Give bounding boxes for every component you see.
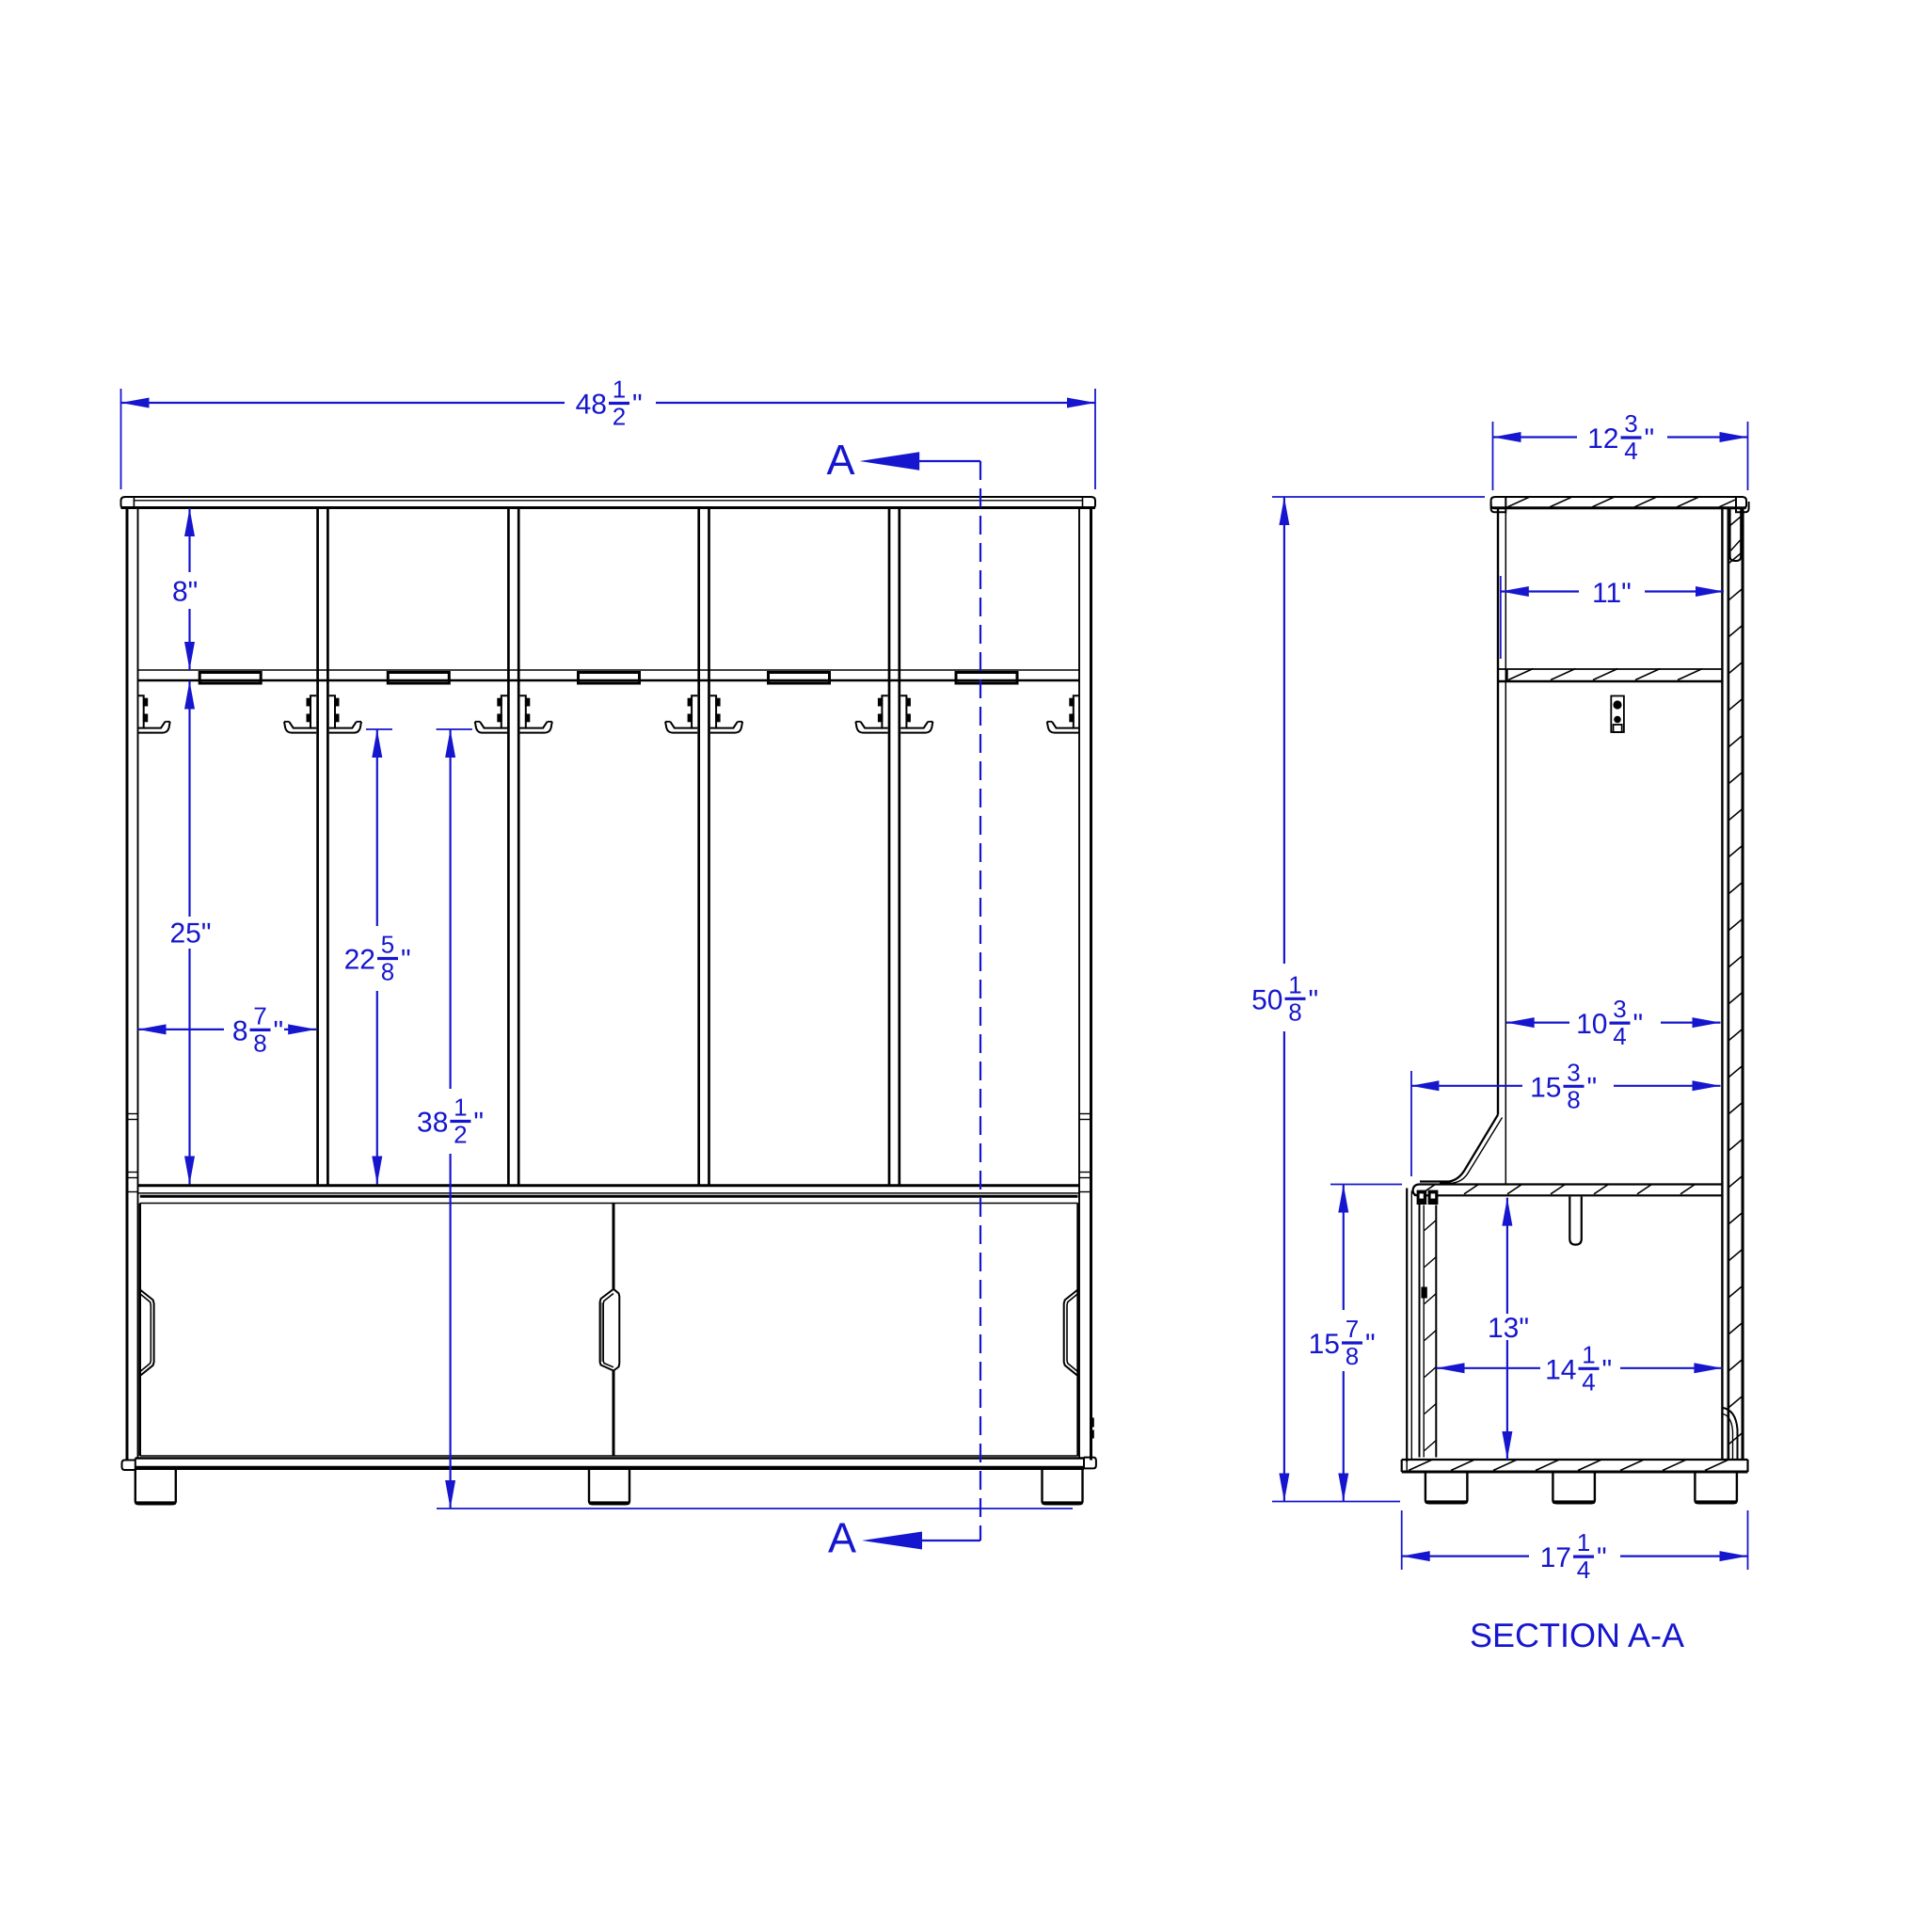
- svg-text:22: 22: [344, 945, 375, 976]
- svg-text:1: 1: [1582, 1340, 1595, 1368]
- svg-text:15: 15: [1309, 1329, 1340, 1360]
- svg-text:1: 1: [1288, 970, 1301, 998]
- svg-text:14: 14: [1545, 1354, 1576, 1385]
- svg-text:38: 38: [417, 1108, 448, 1139]
- svg-text:4: 4: [1577, 1556, 1590, 1584]
- svg-text:8: 8: [253, 1029, 266, 1057]
- svg-text:": ": [1365, 1329, 1376, 1360]
- svg-text:A: A: [826, 436, 854, 484]
- svg-text:1: 1: [454, 1094, 467, 1122]
- svg-text:8": 8": [172, 577, 198, 608]
- svg-text:2: 2: [454, 1121, 467, 1149]
- svg-text:": ": [1633, 1009, 1644, 1040]
- svg-text:": ": [473, 1108, 484, 1139]
- svg-text:50: 50: [1251, 984, 1282, 1015]
- svg-text:4: 4: [1582, 1367, 1595, 1396]
- svg-text:11": 11": [1592, 578, 1632, 609]
- svg-text:10: 10: [1576, 1009, 1607, 1040]
- svg-text:A: A: [828, 1514, 856, 1562]
- svg-text:8: 8: [1346, 1342, 1359, 1370]
- svg-text:13": 13": [1488, 1313, 1529, 1344]
- svg-text:8: 8: [232, 1015, 248, 1046]
- svg-text:8: 8: [1288, 998, 1301, 1026]
- svg-text:": ": [274, 1015, 284, 1046]
- svg-text:": ": [1602, 1354, 1613, 1385]
- svg-text:4: 4: [1613, 1022, 1626, 1050]
- svg-text:3: 3: [1613, 995, 1626, 1023]
- svg-text:7: 7: [1346, 1315, 1359, 1343]
- svg-text:": ": [401, 945, 411, 976]
- svg-text:15: 15: [1530, 1072, 1561, 1103]
- svg-text:3: 3: [1567, 1058, 1580, 1086]
- svg-text:7: 7: [253, 1001, 266, 1030]
- svg-text:1: 1: [1577, 1528, 1590, 1557]
- svg-text:4: 4: [1624, 437, 1637, 465]
- svg-text:SECTION A-A: SECTION A-A: [1470, 1616, 1684, 1654]
- svg-text:": ": [1597, 1542, 1607, 1573]
- svg-text:": ": [632, 390, 643, 421]
- svg-text:5: 5: [381, 931, 394, 959]
- svg-text:": ": [1645, 423, 1655, 455]
- svg-text:3: 3: [1624, 409, 1637, 438]
- svg-text:2: 2: [613, 403, 626, 431]
- svg-text:": ": [1309, 984, 1319, 1015]
- svg-text:17: 17: [1540, 1542, 1571, 1573]
- svg-text:": ": [1587, 1072, 1598, 1103]
- svg-text:1: 1: [613, 375, 626, 404]
- svg-text:8: 8: [1567, 1085, 1580, 1113]
- svg-text:48: 48: [576, 390, 607, 421]
- svg-text:8: 8: [381, 958, 394, 986]
- svg-text:25": 25": [170, 918, 212, 950]
- svg-text:12: 12: [1587, 423, 1618, 455]
